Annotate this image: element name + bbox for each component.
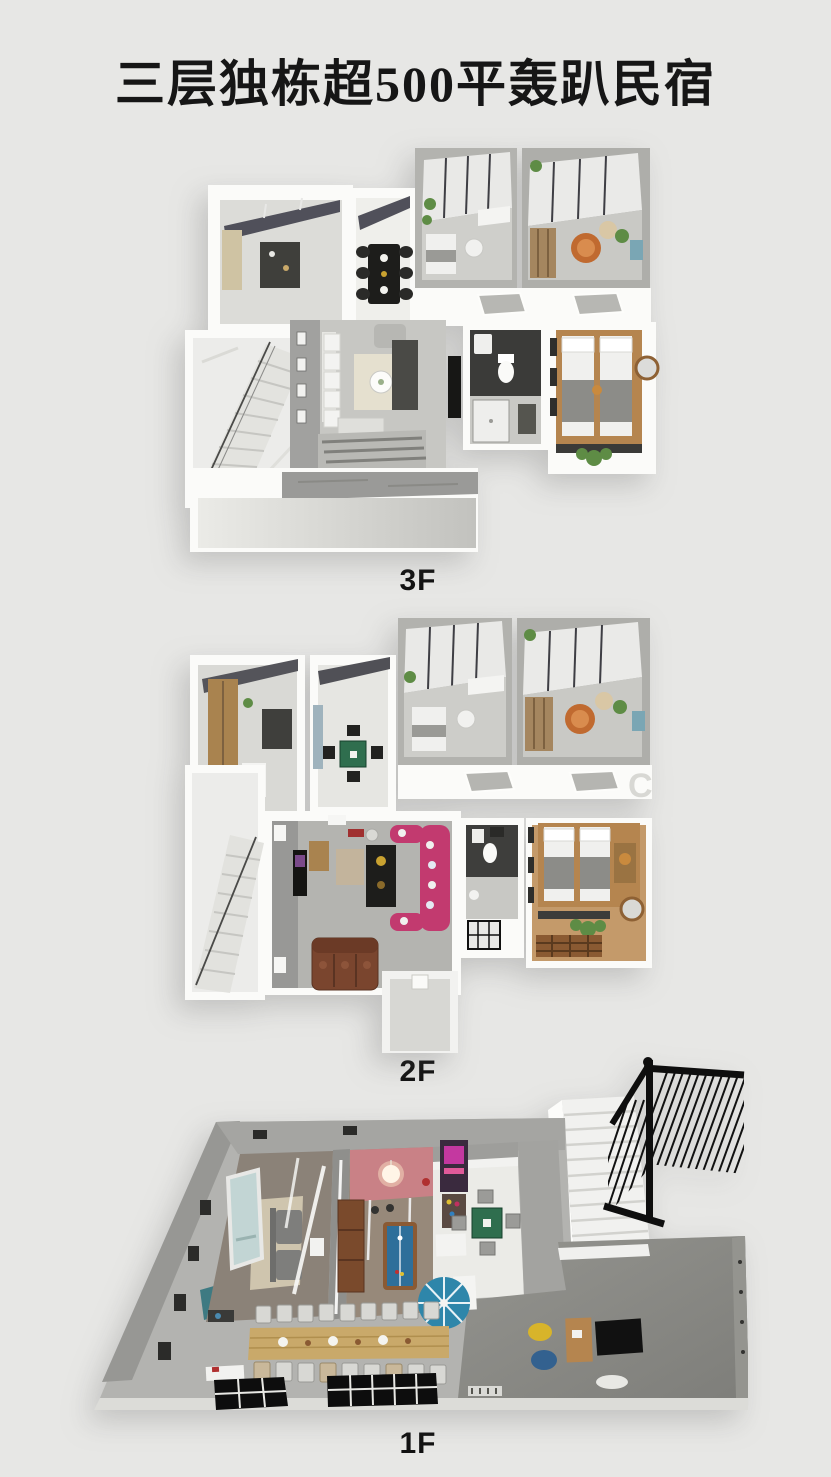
bedroom-2f	[526, 818, 652, 968]
skylight-bedroom-b-3f	[522, 148, 650, 288]
bean-bag-yellow	[528, 1323, 552, 1341]
floor-label-3f: 3F	[168, 564, 668, 598]
game-cabinet	[338, 1200, 364, 1292]
floor-plan-1f: 1F	[88, 1050, 748, 1461]
round-mirror-3f	[636, 357, 658, 379]
skylight-bedroom-b-2f	[517, 618, 650, 765]
leather-sofa-2f	[312, 938, 378, 990]
roof-skylights-3f	[415, 288, 651, 326]
plant-icon	[586, 450, 602, 466]
projection-screen	[228, 1170, 262, 1268]
bean-bag-blue	[531, 1350, 557, 1370]
mahjong-room-2f	[310, 655, 396, 815]
staircase-2f	[185, 765, 265, 1000]
floor-plan-3f: 3F	[168, 142, 668, 598]
page-title: 三层独栋超500平轰趴民宿	[0, 44, 831, 116]
round-mirror-2f	[621, 898, 643, 920]
bedroom-3f	[548, 322, 658, 474]
toilet-3f	[498, 361, 514, 383]
ktv-table	[366, 845, 396, 907]
corridor-2f	[382, 971, 458, 1053]
floor-plan-3f-image	[168, 142, 668, 562]
plant-icon	[530, 160, 542, 172]
plant-icon	[243, 698, 253, 708]
plant-icon	[424, 198, 436, 210]
game-room-1f	[338, 1147, 433, 1318]
bench-sofa	[206, 1365, 245, 1381]
roof-skylights-2f: C	[398, 765, 653, 805]
kitchen-3f	[208, 185, 353, 334]
floor-plan-2f: C	[168, 613, 668, 1089]
floor-plan-1f-image	[88, 1050, 748, 1425]
bathroom-3f	[463, 322, 548, 450]
tv-bench	[565, 1318, 593, 1363]
plant-icon	[404, 671, 416, 683]
living-room-3f	[290, 320, 461, 472]
toilet-2f	[483, 843, 497, 863]
tv-3f	[448, 356, 461, 418]
skylight-bedroom-a-3f	[415, 148, 517, 288]
skylight-bedroom-a-2f	[398, 618, 512, 765]
dining-room-3f	[348, 188, 418, 334]
tv-1f	[595, 1318, 643, 1355]
plant-icon	[524, 629, 536, 641]
ktv-sofa	[420, 825, 450, 931]
terrace-3f	[190, 468, 478, 552]
floor-plan-2f-image: C	[168, 613, 668, 1053]
poster: 三层独栋超500平轰趴民宿	[0, 0, 831, 1477]
floor-label-1f: 1F	[88, 1427, 748, 1461]
bathroom-2f	[460, 818, 524, 958]
mahjong-room-1f	[433, 1140, 566, 1300]
watermark: C	[628, 767, 653, 805]
plant-icon	[580, 921, 596, 937]
